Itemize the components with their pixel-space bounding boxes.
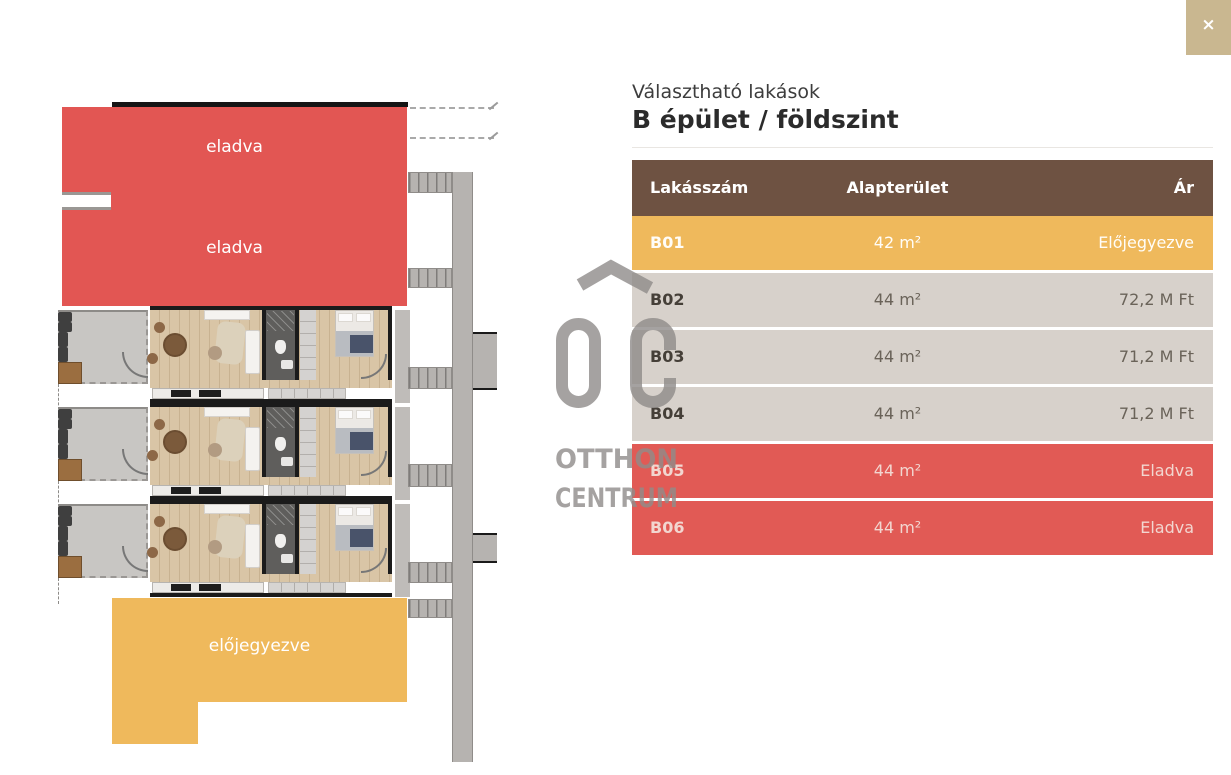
chair bbox=[58, 429, 68, 444]
chair bbox=[58, 444, 68, 459]
table-row-b04[interactable]: B0444 m²71,2 M Ft bbox=[632, 387, 1213, 441]
shower bbox=[267, 408, 294, 428]
table-body: B0142 m²ElőjegyezveB0244 m²72,2 M FtB034… bbox=[632, 216, 1213, 555]
console-shelf bbox=[204, 504, 250, 514]
cell-apartment-id: B02 bbox=[632, 290, 812, 309]
column-header-apartment: Lakásszám bbox=[632, 178, 812, 197]
bed bbox=[335, 310, 374, 357]
cell-price-status: 71,2 M Ft bbox=[983, 404, 1213, 423]
chair bbox=[58, 347, 68, 362]
throw-blanket bbox=[350, 335, 373, 353]
apartment-unit bbox=[58, 500, 410, 597]
sofa bbox=[245, 524, 260, 568]
sink bbox=[281, 554, 293, 563]
cell-price-status: 71,2 M Ft bbox=[983, 347, 1213, 366]
coffee-table bbox=[163, 333, 187, 357]
coffee-table bbox=[163, 430, 187, 454]
toilet bbox=[275, 534, 286, 548]
wardrobe bbox=[268, 485, 346, 496]
closet bbox=[300, 310, 316, 380]
wall bbox=[150, 593, 392, 597]
overlay-label-sold-upper: eladva bbox=[62, 137, 407, 157]
closet bbox=[300, 407, 316, 477]
pillow bbox=[356, 410, 371, 419]
overlay-label-sold-lower: eladva bbox=[62, 238, 407, 258]
coffee-table bbox=[163, 527, 187, 551]
cell-area: 44 m² bbox=[812, 461, 983, 480]
kitchen-counter bbox=[152, 485, 264, 496]
chair bbox=[58, 322, 72, 332]
stairs bbox=[408, 268, 452, 288]
cell-area: 44 m² bbox=[812, 347, 983, 366]
chair bbox=[58, 332, 68, 347]
cell-area: 44 m² bbox=[812, 404, 983, 423]
shaft-wall bbox=[452, 172, 473, 762]
chair bbox=[58, 419, 72, 429]
sofa bbox=[245, 427, 260, 471]
stool bbox=[147, 547, 158, 558]
table-header-row: Lakásszám Alapterület Ár bbox=[632, 160, 1213, 216]
page-title: B épület / földszint bbox=[632, 105, 1213, 135]
cell-apartment-id: B04 bbox=[632, 404, 812, 423]
column-header-area: Alapterület bbox=[812, 178, 983, 197]
table-row-b02[interactable]: B0244 m²72,2 M Ft bbox=[632, 273, 1213, 327]
overlay-reserved-unit-extension[interactable] bbox=[112, 702, 198, 744]
dining-table bbox=[58, 362, 82, 384]
pillow bbox=[338, 313, 353, 322]
stool bbox=[154, 516, 165, 527]
apartment-unit bbox=[58, 306, 410, 403]
corridor bbox=[395, 310, 410, 403]
apartments-table: Lakásszám Alapterület Ár B0142 m²Előjegy… bbox=[632, 160, 1213, 555]
console-shelf bbox=[204, 407, 250, 417]
toilet bbox=[275, 340, 286, 354]
cell-apartment-id: B01 bbox=[632, 233, 812, 252]
overlay-label-reserved: előjegyezve bbox=[112, 636, 407, 656]
wall-notch bbox=[62, 192, 111, 210]
apartment-selector-window: eladva eladva bbox=[0, 0, 1231, 775]
pouf bbox=[208, 540, 222, 554]
cell-price-status: Előjegyezve bbox=[983, 233, 1213, 252]
chair bbox=[58, 526, 68, 541]
wall bbox=[388, 504, 392, 574]
kitchen-counter bbox=[152, 582, 264, 593]
cooktop bbox=[171, 487, 191, 494]
bathroom bbox=[266, 504, 295, 574]
bathroom bbox=[266, 310, 295, 380]
cooktop bbox=[199, 584, 221, 591]
stairs bbox=[408, 562, 452, 583]
throw-blanket bbox=[350, 529, 373, 547]
cell-area: 44 m² bbox=[812, 518, 983, 537]
chair bbox=[58, 541, 68, 556]
stool bbox=[147, 450, 158, 461]
wardrobe bbox=[268, 388, 346, 399]
closet bbox=[300, 504, 316, 574]
bathroom bbox=[266, 407, 295, 477]
divider bbox=[632, 147, 1213, 148]
dining-table bbox=[58, 556, 82, 578]
cooktop bbox=[171, 390, 191, 397]
stairs bbox=[408, 599, 452, 618]
wall bbox=[295, 310, 299, 380]
shower bbox=[267, 505, 294, 525]
cell-apartment-id: B05 bbox=[632, 461, 812, 480]
dashed-reference-line bbox=[410, 137, 494, 139]
stairs bbox=[408, 464, 452, 487]
wall bbox=[388, 407, 392, 477]
close-button[interactable]: × bbox=[1186, 0, 1231, 55]
column-header-price: Ár bbox=[983, 178, 1213, 197]
wall bbox=[295, 407, 299, 477]
chair bbox=[58, 506, 72, 516]
stool bbox=[154, 322, 165, 333]
sofa bbox=[245, 330, 260, 374]
wall bbox=[388, 310, 392, 380]
panel-subtitle: Választható lakások bbox=[632, 82, 1213, 103]
bed bbox=[335, 407, 374, 454]
wardrobe bbox=[268, 582, 346, 593]
kitchen-counter bbox=[152, 388, 264, 399]
pillow bbox=[338, 507, 353, 516]
pouf bbox=[208, 346, 222, 360]
cell-price-status: 72,2 M Ft bbox=[983, 290, 1213, 309]
table-row-b06[interactable]: B0644 m²Eladva bbox=[632, 501, 1213, 555]
stairs bbox=[408, 367, 452, 389]
dashed-line-marker bbox=[489, 102, 499, 111]
console-shelf bbox=[204, 310, 250, 320]
corridor bbox=[395, 504, 410, 597]
stool bbox=[154, 419, 165, 430]
table-row-b01[interactable]: B0142 m²Előjegyezve bbox=[632, 216, 1213, 270]
chair bbox=[58, 516, 72, 526]
shaft-landing bbox=[473, 332, 497, 390]
sink bbox=[281, 360, 293, 369]
cooktop bbox=[199, 487, 221, 494]
chair bbox=[58, 312, 72, 322]
cell-price-status: Eladva bbox=[983, 461, 1213, 480]
cooktop bbox=[199, 390, 221, 397]
cell-apartment-id: B03 bbox=[632, 347, 812, 366]
wall bbox=[295, 504, 299, 574]
chair bbox=[58, 409, 72, 419]
cell-area: 42 m² bbox=[812, 233, 983, 252]
stool bbox=[147, 353, 158, 364]
terrace-divider bbox=[58, 578, 59, 604]
cell-apartment-id: B06 bbox=[632, 518, 812, 537]
apartment-unit bbox=[58, 403, 410, 500]
throw-blanket bbox=[350, 432, 373, 450]
sink bbox=[281, 457, 293, 466]
pouf bbox=[208, 443, 222, 457]
dining-table bbox=[58, 459, 82, 481]
unit-list-panel: Választható lakások B épület / földszint… bbox=[632, 82, 1213, 558]
table-row-b05[interactable]: B0544 m²Eladva bbox=[632, 444, 1213, 498]
dashed-reference-line bbox=[410, 107, 494, 109]
shower bbox=[267, 311, 294, 331]
cell-area: 44 m² bbox=[812, 290, 983, 309]
cell-price-status: Eladva bbox=[983, 518, 1213, 537]
shaft-landing bbox=[473, 533, 497, 563]
pillow bbox=[356, 313, 371, 322]
cooktop bbox=[171, 584, 191, 591]
pillow bbox=[338, 410, 353, 419]
stairs bbox=[408, 172, 452, 193]
pillow bbox=[356, 507, 371, 516]
close-icon: × bbox=[1201, 15, 1215, 35]
dashed-line-marker bbox=[489, 132, 499, 141]
toilet bbox=[275, 437, 286, 451]
bed bbox=[335, 504, 374, 551]
table-row-b03[interactable]: B0344 m²71,2 M Ft bbox=[632, 330, 1213, 384]
